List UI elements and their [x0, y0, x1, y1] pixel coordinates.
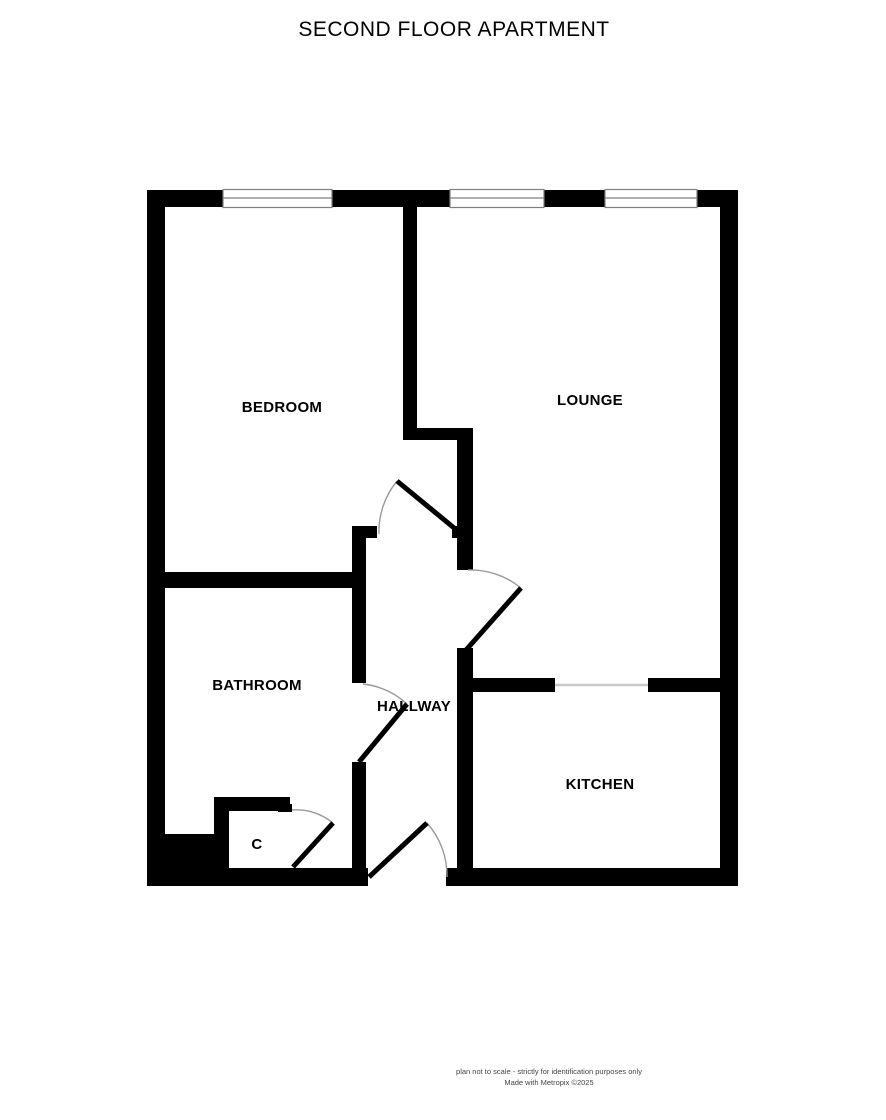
lounge-door-leaf: [466, 588, 521, 650]
bedroom-door-leaf: [397, 481, 459, 532]
lounge-label: LOUNGE: [557, 392, 623, 409]
wall-bedroom-bathroom: [147, 572, 366, 588]
floorplan-canvas: SECOND FLOOR APARTMENT: [0, 0, 886, 1120]
wall-bathroom-hallway-lower: [352, 762, 366, 868]
wall-kitchen-top-right: [648, 678, 738, 692]
walls-group: [147, 190, 738, 886]
entrance-door-arc: [427, 823, 447, 877]
wall-kitchen-top-left: [473, 678, 555, 692]
kitchen-label: KITCHEN: [566, 776, 635, 793]
entrance-door-leaf: [369, 823, 427, 877]
wall-lounge-step-horizontal: [403, 428, 473, 440]
wall-hallway-kitchen-lower: [457, 648, 473, 886]
cupboard-door-arc: [292, 810, 333, 823]
footer-credit: Made with Metropix ©2025: [504, 1078, 593, 1087]
bedroom-window: [223, 190, 332, 208]
wall-outer-bottom-right-of-entrance: [446, 868, 738, 886]
bedroom-door-arc: [379, 481, 397, 534]
hallway-label: HALLWAY: [377, 698, 451, 715]
floorplan-page: SECOND FLOOR APARTMENT: [0, 0, 886, 1120]
solid-structure-block: [165, 834, 229, 868]
wall-hallway-lounge-upper: [457, 440, 473, 570]
footer-disclaimer: plan not to scale - strictly for identif…: [456, 1067, 642, 1076]
wall-bedroom-door-left-jamb: [352, 526, 377, 538]
bathroom-label: BATHROOM: [212, 677, 302, 694]
wall-outer-bottom-left-of-entrance: [147, 868, 368, 886]
bedroom-label: BEDROOM: [242, 399, 322, 416]
cupboard-door-leaf: [293, 823, 333, 867]
lounge-window-right: [605, 190, 697, 208]
plan-title: SECOND FLOOR APARTMENT: [298, 18, 609, 41]
cupboard-label: C: [251, 836, 262, 853]
room-labels-group: BEDROOM LOUNGE BATHROOM HALLWAY KITCHEN …: [212, 392, 634, 853]
wall-outer-left: [147, 190, 165, 886]
wall-bathroom-hallway-upper: [352, 538, 366, 683]
wall-cupboard-door-jamb: [278, 804, 292, 812]
lounge-door-arc: [468, 570, 521, 588]
wall-bedroom-lounge-divider: [403, 200, 417, 440]
windows-group: [223, 190, 697, 208]
wall-outer-right: [720, 190, 738, 886]
lounge-window-left: [450, 190, 544, 208]
footer-group: plan not to scale - strictly for identif…: [456, 1067, 642, 1087]
